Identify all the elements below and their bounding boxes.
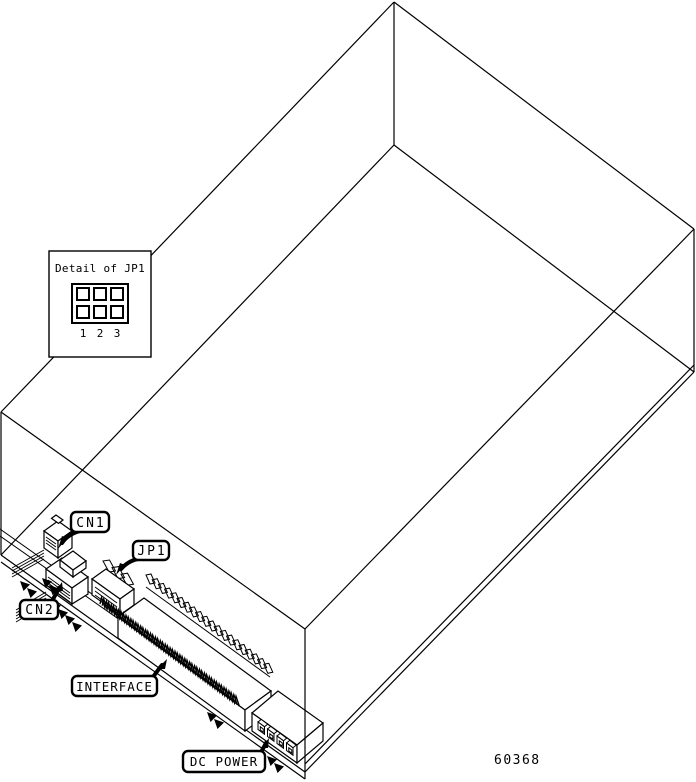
pointer-arrow-icon: [72, 622, 82, 632]
drive-bottom-view-diagram: CN1 JP1 CN2 INTERFACE DC POWER Detail of…: [0, 0, 696, 782]
detail-inset-title: Detail of JP1: [55, 262, 145, 275]
jp1-label: JP1: [137, 544, 166, 559]
diagram-svg: CN1 JP1 CN2 INTERFACE DC POWER Detail of…: [0, 0, 696, 782]
dc-power-label: DC POWER: [190, 754, 258, 769]
interface-label: INTERFACE: [76, 679, 153, 694]
jumper-pin: [77, 288, 89, 300]
jumper-pin: [111, 288, 123, 300]
jumper-pin: [94, 306, 106, 318]
jumper-pin-number-3: 3: [114, 327, 121, 340]
callout-jp1: JP1: [116, 541, 169, 575]
detail-inset: Detail of JP1 1 2 3: [49, 251, 151, 357]
jumper-pin: [111, 306, 123, 318]
jumper-pin: [77, 306, 89, 318]
pointer-arrow-icon: [27, 588, 37, 598]
jumper-pin-number-1: 1: [80, 327, 87, 340]
callout-interface: INTERFACE: [72, 659, 167, 696]
chassis-wireframe: [1, 2, 694, 779]
cn1-label: CN1: [76, 516, 105, 531]
jumper-block: [72, 284, 128, 323]
cn2-label: CN2: [25, 603, 54, 618]
callout-dc-power: DC POWER: [183, 738, 269, 772]
pointer-arrow-icon: [274, 763, 284, 773]
part-number: 60368: [494, 753, 541, 768]
jumper-pin: [94, 288, 106, 300]
jumper-pin-number-2: 2: [97, 327, 104, 340]
